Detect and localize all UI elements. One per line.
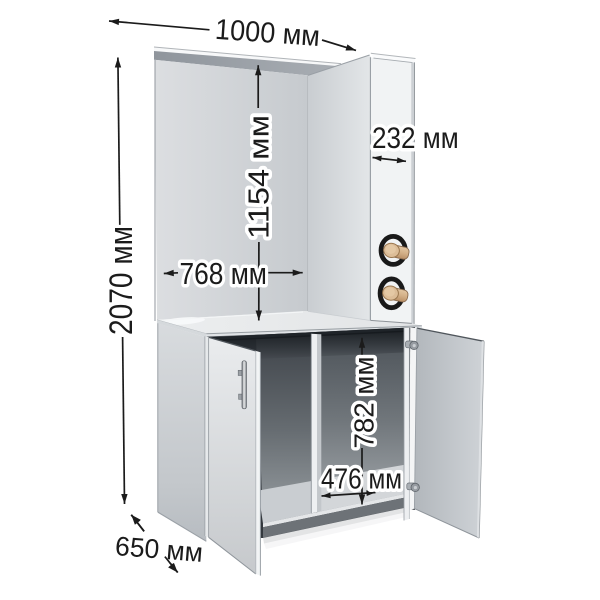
svg-text:782 мм: 782 мм (349, 357, 380, 449)
svg-text:650 мм: 650 мм (114, 531, 204, 568)
svg-text:1000 мм: 1000 мм (214, 14, 321, 53)
svg-text:1154 мм: 1154 мм (244, 115, 276, 239)
svg-text:476 мм: 476 мм (321, 464, 402, 496)
svg-text:232 мм: 232 мм (372, 122, 459, 155)
svg-text:768 мм: 768 мм (180, 256, 267, 291)
svg-text:2070 мм: 2070 мм (103, 226, 139, 335)
